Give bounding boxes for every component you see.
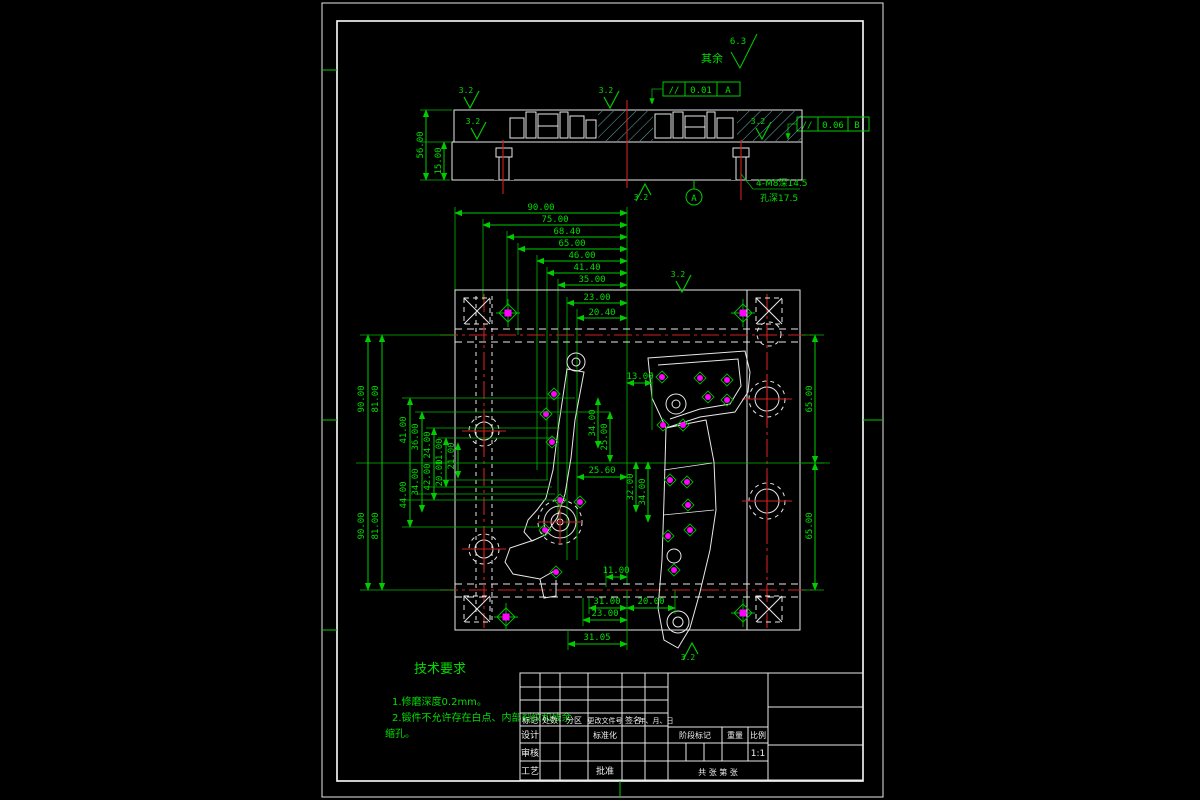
cad-drawing-canvas: 其余 6.3 // 0.01 A // 0.06 B: [0, 0, 1200, 800]
engineering-drawing: 其余 6.3 // 0.01 A // 0.06 B: [0, 0, 1200, 800]
parallelism-symbol: //: [802, 121, 813, 131]
dim-text: 23.00: [591, 609, 618, 619]
guide-pillar: [462, 527, 506, 571]
dim-text: 65.00: [805, 512, 815, 539]
dim-text: 42.00: [423, 463, 433, 490]
corner-screw: [756, 596, 782, 622]
dim-section-lower: 15.00: [434, 147, 444, 174]
plan-dimensions: 13.00 34.00 25.00 25.60 32.00 34.00 11.0…: [577, 335, 824, 590]
tb-check: 审核: [521, 747, 539, 759]
dim-text: 81.00: [371, 512, 381, 539]
mold-plate-outline: [455, 290, 800, 630]
surface-default-value: 6.3: [730, 37, 746, 47]
corner-screw: [464, 298, 490, 324]
dim-text: 20.00: [637, 597, 664, 607]
datum-symbol-A: A: [686, 180, 702, 205]
dim-section-total: 56.00: [416, 131, 426, 158]
roughness-value: 3.2: [459, 86, 474, 95]
surface-default-label: 其余: [701, 51, 723, 65]
dim-text: 41.40: [573, 263, 600, 273]
corner-screw: [464, 596, 490, 622]
parallelism-symbol: //: [669, 86, 680, 96]
note-line-3: 缩孔。: [385, 727, 415, 740]
cavity-part-left: [505, 353, 585, 598]
roughness-value: 3.2: [599, 86, 614, 95]
dim-text: 34.00: [411, 468, 421, 495]
dim-text: 21.00: [447, 442, 457, 469]
dim-text: 65.00: [558, 239, 585, 249]
tb-stage: 阶段标记: [679, 730, 711, 740]
tb-header-riqi: 年、月、日: [639, 716, 674, 725]
dim-text: 41.00: [399, 416, 409, 443]
tb-scale-value: 1:1: [751, 749, 765, 759]
thread-note-2: 孔深17.5: [760, 193, 798, 204]
tb-process: 工艺: [521, 766, 539, 777]
guide-bushing: [742, 476, 792, 526]
dim-text: 20.40: [588, 308, 615, 318]
roughness-value: 3.2: [681, 653, 696, 662]
section-view: 3.2 3.2 3.2 3.2 3.2 A 4-M8深14.5 孔深17.5 5…: [416, 86, 808, 205]
parallelism-tolerance: 0.01: [690, 86, 712, 96]
return-pin: [731, 599, 755, 627]
tb-weight: 重量: [727, 730, 743, 740]
bolt-left: [494, 146, 514, 180]
dim-text: 81.00: [371, 385, 381, 412]
dim-text: 23.00: [583, 293, 610, 303]
parallelism-datum: A: [725, 86, 731, 96]
dim-text: 32.00: [626, 473, 636, 500]
parallelism-frame-top: // 0.01 A: [652, 82, 740, 104]
tb-header-biaoji: 标记: [522, 715, 538, 725]
datum-letter: A: [691, 194, 697, 204]
notes-title: 技术要求: [414, 662, 466, 677]
dim-text: 68.40: [553, 227, 580, 237]
roughness-value: 3.2: [751, 117, 766, 126]
dim-text: 34.00: [588, 409, 598, 436]
dim-text: 75.00: [541, 215, 568, 225]
tb-standardization: 标准化: [593, 730, 617, 740]
guide-pillar: [462, 409, 506, 453]
tb-scale-label: 比例: [750, 730, 766, 740]
note-line-1: 1.修磨深度0.2mm。: [392, 695, 487, 708]
tb-header-fenqu: 分区: [566, 716, 582, 725]
dim-text: 20.00: [435, 459, 445, 486]
tb-header-genggai: 更改文件号: [588, 716, 623, 725]
tb-sheet: 共 张 第 张: [698, 767, 738, 777]
dim-text: 31.05: [583, 633, 610, 643]
thread-note-1: 4-M8深14.5: [756, 178, 808, 189]
roughness-value: 3.2: [671, 270, 686, 279]
dim-text: 44.00: [399, 481, 409, 508]
dim-text: 24.00: [423, 431, 433, 458]
dim-text: 34.00: [638, 478, 648, 505]
title-block: 标记 处数 分区 更改文件号 签名 年、月、日 设计 标准化 审核 工艺 批准 …: [520, 673, 863, 780]
dim-text: 13.00: [626, 372, 653, 382]
dim-text: 35.00: [578, 275, 605, 285]
technical-notes: 技术要求 1.修磨深度0.2mm。 2.锻件不允许存在白点、内部裂纹和残余 缩孔…: [385, 662, 572, 740]
bottom-dimension-chain: 31.00 20.00 23.00 31.05: [568, 590, 675, 650]
parallelism-tolerance: 0.06: [822, 121, 844, 131]
dim-text: 25.00: [600, 423, 610, 450]
return-pin: [731, 299, 755, 327]
cavity-components-right: [655, 112, 733, 138]
dim-text: 31.00: [593, 597, 620, 607]
dim-text: 90.00: [357, 385, 367, 412]
dim-text: 25.60: [588, 466, 615, 476]
dim-text: 11.00: [602, 566, 629, 576]
return-pin: [496, 299, 520, 327]
roughness-value: 3.2: [634, 193, 649, 202]
parallelism-datum: B: [854, 121, 859, 131]
tb-approve: 批准: [596, 765, 614, 777]
dim-text: 90.00: [357, 512, 367, 539]
dim-text: 90.00: [527, 203, 554, 213]
cavity-components-left: [510, 112, 596, 138]
dim-text: 36.00: [411, 423, 421, 450]
tb-header-chushu: 处数: [542, 715, 558, 725]
dim-text: 46.00: [568, 251, 595, 261]
roughness-value: 3.2: [466, 117, 481, 126]
tb-design: 设计: [521, 729, 539, 741]
return-pin: [494, 603, 518, 631]
default-roughness-note: 其余 6.3: [701, 34, 757, 68]
dim-text: 65.00: [805, 385, 815, 412]
corner-screw: [756, 298, 782, 324]
